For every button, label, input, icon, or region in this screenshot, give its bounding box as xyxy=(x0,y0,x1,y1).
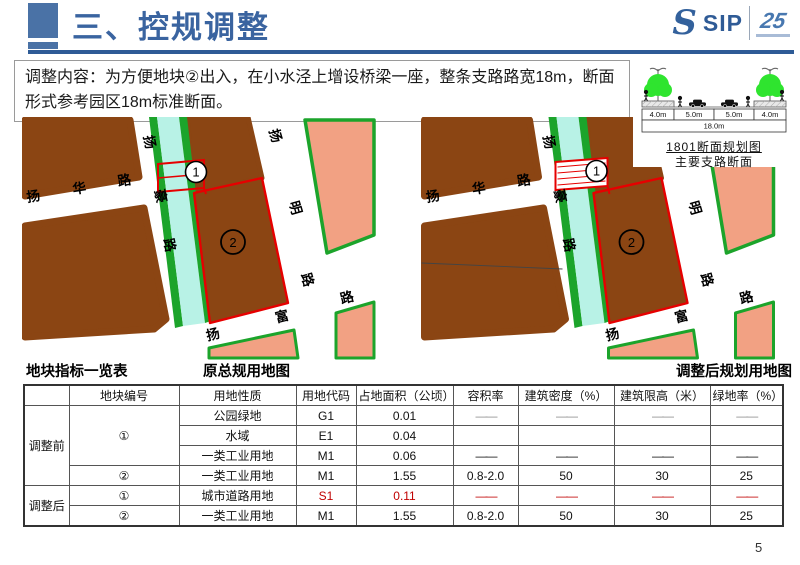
nature-cell: 一类工业用地 xyxy=(179,506,296,527)
area-cell: 0.11 xyxy=(356,486,453,506)
car-icon xyxy=(721,100,738,108)
far-cell: —— xyxy=(453,446,518,466)
section-diagram-subcaption: 主要支路断面 xyxy=(633,155,795,169)
col-header: 建筑密度（%） xyxy=(518,385,614,406)
road-label-char: 明 xyxy=(286,199,304,216)
col-header: 绿地率（%） xyxy=(710,385,783,406)
header-accent-block xyxy=(28,3,58,38)
height-cell: 30 xyxy=(614,506,710,527)
tree-icon xyxy=(756,74,784,97)
sidewalk-hatch xyxy=(754,101,786,107)
left-map-caption: 原总规用地图 xyxy=(203,360,290,381)
parcel-cell: ② xyxy=(69,506,179,527)
density-cell: —— xyxy=(518,486,614,506)
far-cell: —— xyxy=(453,486,518,506)
code-cell: S1 xyxy=(296,486,356,506)
parcel-1-number: 1 xyxy=(593,164,600,179)
road-label-char: 扬 xyxy=(25,187,41,205)
area-cell: 0.06 xyxy=(356,446,453,466)
sip-logo-text: SIP xyxy=(703,10,743,37)
table-row: ② 一类工业用地 M1 1.55 0.8-2.0 50 30 25 xyxy=(24,506,783,527)
code-cell: M1 xyxy=(296,446,356,466)
section-diagram-caption: 1801断面规划图 xyxy=(633,140,795,155)
road-label-char: 扬 xyxy=(425,187,441,205)
table-row: 调整前 ① 公园绿地 G1 0.01 —— —— —— —— xyxy=(24,406,783,426)
area-cell: 0.01 xyxy=(356,406,453,426)
parcel-2-number: 2 xyxy=(628,235,635,250)
green-cell: —— xyxy=(710,406,783,426)
adjustment-intro-text: 调整内容：为方便地块②出入，在小水泾上增设桥梁一座，整条支路路宽18m，断面形式… xyxy=(25,69,614,111)
height-cell xyxy=(614,426,710,446)
anniversary-logo: 25 xyxy=(756,10,790,37)
col-header: 容积率 xyxy=(453,385,518,406)
height-cell: 30 xyxy=(614,466,710,486)
code-cell: G1 xyxy=(296,406,356,426)
sip-logo-s-icon: S xyxy=(672,6,697,40)
nature-cell: 水域 xyxy=(179,426,296,446)
road-section-drawing: 4.0m 5.0m 5.0m 4.0m 18.0m xyxy=(633,57,795,135)
green-cell: —— xyxy=(710,446,783,466)
anniversary-25-icon: 25 xyxy=(758,10,787,32)
dimension-label: 5.0m xyxy=(726,110,743,119)
group-label-after: 调整后 xyxy=(24,486,69,527)
header-rule xyxy=(28,50,794,54)
road-section-diagram: 4.0m 5.0m 5.0m 4.0m 18.0m 1801断面规划图 主要支路… xyxy=(633,57,795,167)
parcel-1-number: 1 xyxy=(192,165,199,180)
pedestrian-icon xyxy=(678,96,682,107)
far-cell xyxy=(453,426,518,446)
pedestrian-icon xyxy=(644,90,648,101)
parcel-2-number: 2 xyxy=(229,235,236,250)
pink-parcel xyxy=(609,330,698,358)
road-label-char: 路 xyxy=(738,288,755,307)
pedestrian-icon xyxy=(746,96,750,107)
green-cell: 25 xyxy=(710,466,783,486)
road-label-char: 路 xyxy=(338,288,355,307)
table-caption: 地块指标一览表 xyxy=(26,360,128,381)
dimension-label: 4.0m xyxy=(762,110,779,119)
dimension-total-label: 18.0m xyxy=(704,122,725,131)
col-header: 用地性质 xyxy=(179,385,296,406)
col-header: 建筑限高（米） xyxy=(614,385,710,406)
height-cell: —— xyxy=(614,486,710,506)
parcel-cell: ② xyxy=(69,466,179,486)
header-accent-block-small xyxy=(28,42,58,49)
density-cell: —— xyxy=(518,446,614,466)
dimension-label: 4.0m xyxy=(650,110,667,119)
pink-parcel xyxy=(305,120,374,253)
table-header-row: 地块编号 用地性质 用地代码 占地面积（公顷） 容积率 建筑密度（%） 建筑限高… xyxy=(24,385,783,406)
nature-cell: 公园绿地 xyxy=(179,406,296,426)
parcel-cell: ① xyxy=(69,406,179,466)
group-label-before: 调整前 xyxy=(24,406,69,486)
nature-cell: 一类工业用地 xyxy=(179,446,296,466)
road-label-char: 明 xyxy=(686,199,704,216)
industrial-parcel xyxy=(425,208,566,337)
height-cell: —— xyxy=(614,406,710,426)
col-header: 用地代码 xyxy=(296,385,356,406)
col-header: 地块编号 xyxy=(69,385,179,406)
road-label-char: 扬 xyxy=(604,325,621,344)
pink-parcel xyxy=(336,302,374,358)
area-cell: 1.55 xyxy=(356,466,453,486)
green-cell xyxy=(710,426,783,446)
industrial-parcel xyxy=(25,208,166,337)
dimension-label: 5.0m xyxy=(686,110,703,119)
code-cell: M1 xyxy=(296,466,356,486)
sip-logo: S SIP 25 xyxy=(672,6,790,40)
logo-divider xyxy=(749,6,750,40)
nature-cell: 城市道路用地 xyxy=(179,486,296,506)
page-title: 三、控规调整 xyxy=(72,2,270,47)
pink-parcel xyxy=(209,330,298,358)
sidewalk-hatch xyxy=(642,101,674,107)
original-landuse-map: 1 2 扬 华 路 扬 豪 路 扬 明 路 扬 富 路 xyxy=(22,117,378,362)
code-cell: M1 xyxy=(296,506,356,527)
anniversary-logo-bar xyxy=(756,34,790,37)
green-cell: —— xyxy=(710,486,783,506)
nature-cell: 一类工业用地 xyxy=(179,466,296,486)
far-cell: 0.8-2.0 xyxy=(453,466,518,486)
slide: 三、控规调整 S SIP 25 调整内容：为方便地块②出入，在小水泾上增设桥梁一… xyxy=(0,0,800,565)
road-label-char: 路 xyxy=(698,271,717,289)
adjustment-intro-box: 调整内容：为方便地块②出入，在小水泾上增设桥梁一座，整条支路路宽18m，断面形式… xyxy=(14,60,630,122)
table-row: ② 一类工业用地 M1 1.55 0.8-2.0 50 30 25 xyxy=(24,466,783,486)
code-cell: E1 xyxy=(296,426,356,446)
road-label-char: 富 xyxy=(673,307,690,326)
road-label-char: 扬 xyxy=(266,127,285,144)
table-row: 调整后 ① 城市道路用地 S1 0.11 —— —— —— —— xyxy=(24,486,783,506)
col-header: 占地面积（公顷） xyxy=(356,385,453,406)
right-map-caption: 调整后规划用地图 xyxy=(676,360,792,381)
pink-parcel xyxy=(736,302,774,358)
road-label-char: 富 xyxy=(273,307,290,326)
tree-icon xyxy=(644,74,672,97)
far-cell: —— xyxy=(453,406,518,426)
area-cell: 0.04 xyxy=(356,426,453,446)
height-cell: —— xyxy=(614,446,710,466)
far-cell: 0.8-2.0 xyxy=(453,506,518,527)
road-label-char: 路 xyxy=(298,271,317,289)
density-cell: 50 xyxy=(518,466,614,486)
col-header xyxy=(24,385,69,406)
area-cell: 1.55 xyxy=(356,506,453,527)
parcel-indicator-table: 地块编号 用地性质 用地代码 占地面积（公顷） 容积率 建筑密度（%） 建筑限高… xyxy=(23,384,784,527)
parcel-cell: ① xyxy=(69,486,179,506)
density-cell xyxy=(518,426,614,446)
green-cell: 25 xyxy=(710,506,783,527)
car-icon xyxy=(689,100,706,108)
density-cell: 50 xyxy=(518,506,614,527)
density-cell: —— xyxy=(518,406,614,426)
road-label-char: 扬 xyxy=(204,325,221,344)
pedestrian-icon xyxy=(780,90,784,101)
page-number: 5 xyxy=(755,540,762,555)
